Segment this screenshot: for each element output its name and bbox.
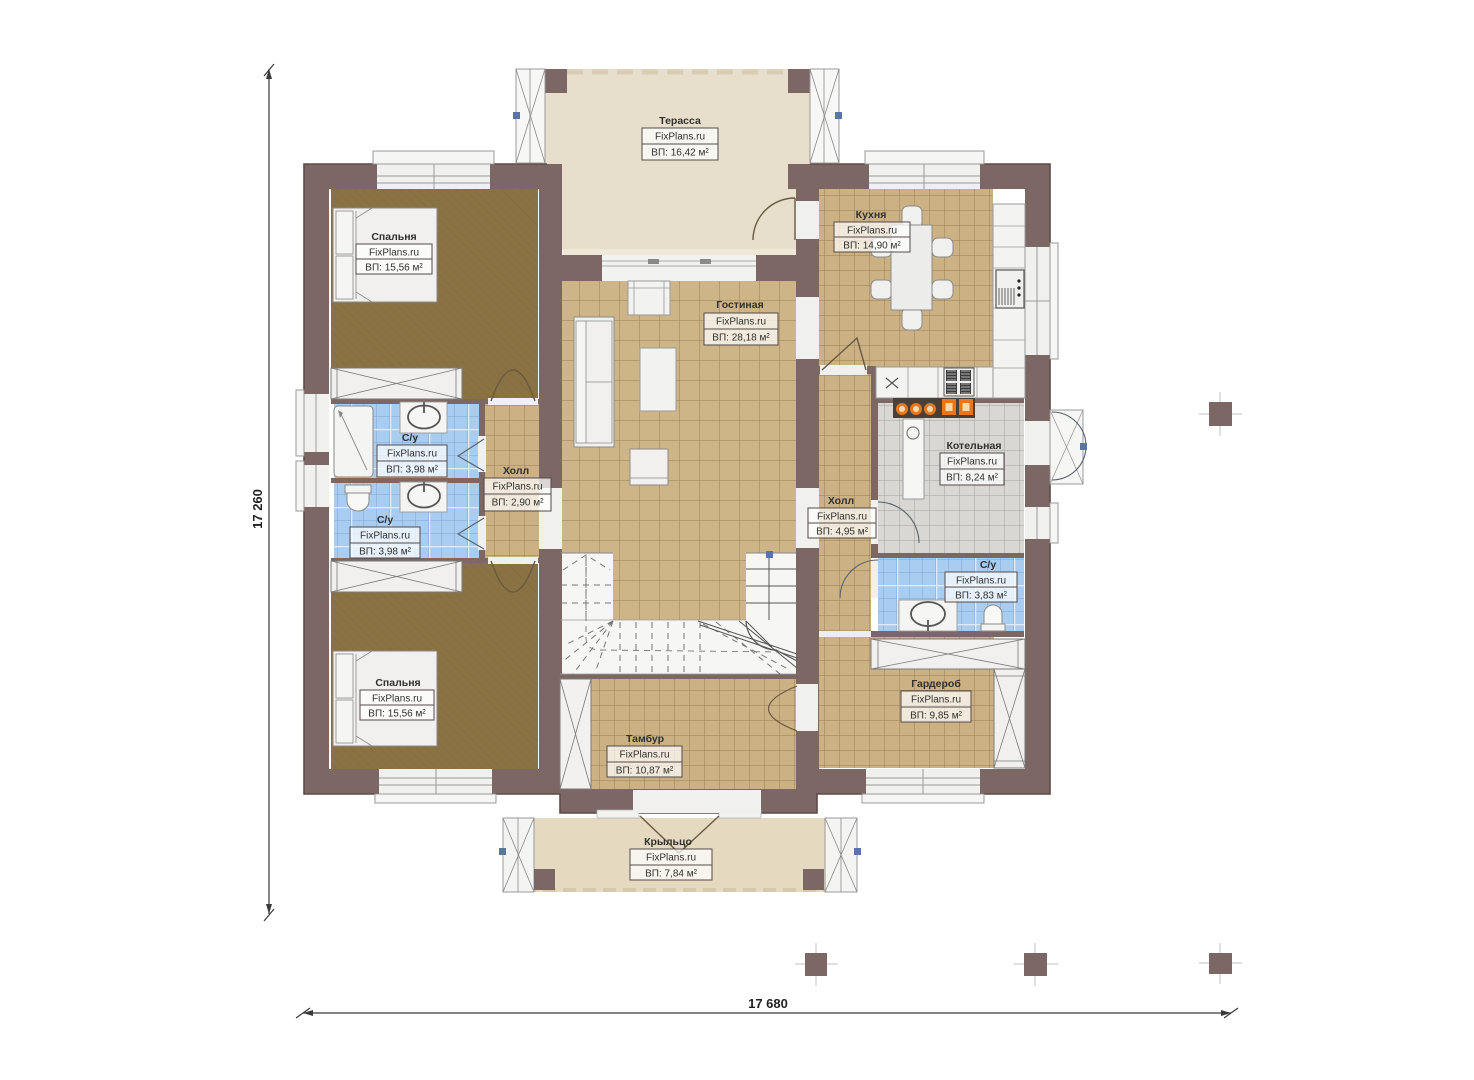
- svg-text:FixPlans.ru: FixPlans.ru: [619, 750, 669, 761]
- svg-text:Крыльцо: Крыльцо: [644, 836, 692, 848]
- svg-text:ВП: 3,98 м²: ВП: 3,98 м²: [359, 547, 412, 558]
- svg-text:ВП: 28,18 м²: ВП: 28,18 м²: [712, 333, 770, 344]
- svg-text:FixPlans.ru: FixPlans.ru: [956, 576, 1006, 587]
- svg-text:Тамбур: Тамбур: [626, 733, 664, 745]
- svg-text:ВП: 3,98 м²: ВП: 3,98 м²: [386, 465, 439, 476]
- svg-text:Терасса: Терасса: [659, 115, 701, 127]
- svg-text:FixPlans.ru: FixPlans.ru: [655, 132, 705, 143]
- svg-text:FixPlans.ru: FixPlans.ru: [387, 449, 437, 460]
- svg-text:17 680: 17 680: [748, 996, 788, 1011]
- svg-text:С/у: С/у: [402, 432, 419, 444]
- svg-text:FixPlans.ru: FixPlans.ru: [492, 482, 542, 493]
- svg-text:FixPlans.ru: FixPlans.ru: [947, 457, 997, 468]
- svg-text:ВП: 9,85 м²: ВП: 9,85 м²: [910, 711, 963, 722]
- svg-text:ВП: 15,56 м²: ВП: 15,56 м²: [368, 709, 426, 720]
- svg-text:ВП: 8,24 м²: ВП: 8,24 м²: [946, 473, 999, 484]
- svg-text:ВП: 3,83 м²: ВП: 3,83 м²: [955, 591, 1008, 602]
- svg-text:FixPlans.ru: FixPlans.ru: [372, 694, 422, 705]
- svg-text:Гостиная: Гостиная: [716, 299, 763, 311]
- svg-text:ВП: 15,56 м²: ВП: 15,56 м²: [365, 263, 423, 274]
- svg-text:FixPlans.ru: FixPlans.ru: [847, 226, 897, 237]
- svg-text:ВП: 4,95 м²: ВП: 4,95 м²: [816, 527, 869, 538]
- svg-text:ВП: 7,84 м²: ВП: 7,84 м²: [645, 869, 698, 880]
- svg-text:FixPlans.ru: FixPlans.ru: [369, 248, 419, 259]
- svg-text:Гардероб: Гардероб: [911, 678, 961, 690]
- svg-text:Котельная: Котельная: [947, 440, 1002, 452]
- svg-text:FixPlans.ru: FixPlans.ru: [360, 531, 410, 542]
- svg-text:FixPlans.ru: FixPlans.ru: [911, 695, 961, 706]
- svg-text:Спальня: Спальня: [371, 231, 416, 243]
- svg-text:ВП: 10,87 м²: ВП: 10,87 м²: [616, 766, 674, 777]
- svg-text:ВП: 14,90 м²: ВП: 14,90 м²: [843, 241, 901, 252]
- svg-text:Спальня: Спальня: [375, 677, 420, 689]
- svg-text:С/у: С/у: [377, 514, 394, 526]
- svg-text:ВП: 16,42 м²: ВП: 16,42 м²: [651, 148, 709, 159]
- svg-text:FixPlans.ru: FixPlans.ru: [646, 853, 696, 864]
- svg-text:FixPlans.ru: FixPlans.ru: [716, 317, 766, 328]
- svg-text:Холл: Холл: [828, 495, 854, 507]
- svg-text:С/у: С/у: [980, 559, 997, 571]
- svg-text:Кухня: Кухня: [856, 209, 887, 221]
- svg-text:17 260: 17 260: [250, 489, 265, 529]
- svg-text:FixPlans.ru: FixPlans.ru: [817, 512, 867, 523]
- svg-text:ВП: 2,90 м²: ВП: 2,90 м²: [492, 498, 545, 509]
- svg-text:Холл: Холл: [503, 465, 529, 477]
